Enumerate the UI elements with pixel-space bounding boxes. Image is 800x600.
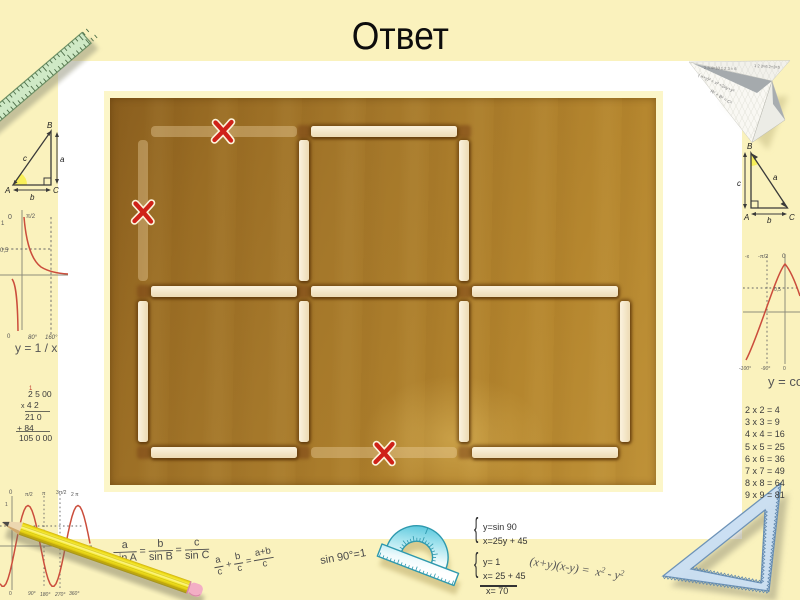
svg-text:3π/2: 3π/2 [56,490,67,496]
svg-text:b: b [30,193,35,202]
svg-text:1: 1 [1,221,5,227]
svg-text:0,5: 0,5 [774,287,781,293]
svg-text:C: C [53,186,59,195]
svg-text:C: C [789,213,795,222]
svg-text:B: B [47,121,53,130]
svg-text:b: b [767,216,772,225]
svg-text:c: c [737,179,741,188]
svg-text:-x: -x [745,254,750,260]
svg-text:2 π: 2 π [71,492,79,498]
svg-text:0: 0 [782,253,786,260]
svg-text:π: π [42,491,46,497]
svg-text:0: 0 [8,214,12,221]
svg-text:a: a [60,155,65,164]
svg-text:y = 1 / x: y = 1 / x [15,341,57,355]
svg-text:A: A [4,186,10,195]
svg-text:0: 0 [9,490,13,496]
svg-text:a: a [773,173,778,182]
svg-text:A: A [743,213,749,222]
svg-text:0: 0 [783,366,786,372]
svg-text:π/2: π/2 [25,492,33,498]
svg-text:-100°: -100° [739,366,751,372]
svg-text:π/2: π/2 [26,214,36,220]
svg-text:0,5: 0,5 [0,248,9,254]
svg-text:0: 0 [7,334,11,340]
svg-text:c: c [23,154,27,163]
svg-text:-90°: -90° [761,366,770,372]
svg-text:-π/2: -π/2 [758,254,768,260]
